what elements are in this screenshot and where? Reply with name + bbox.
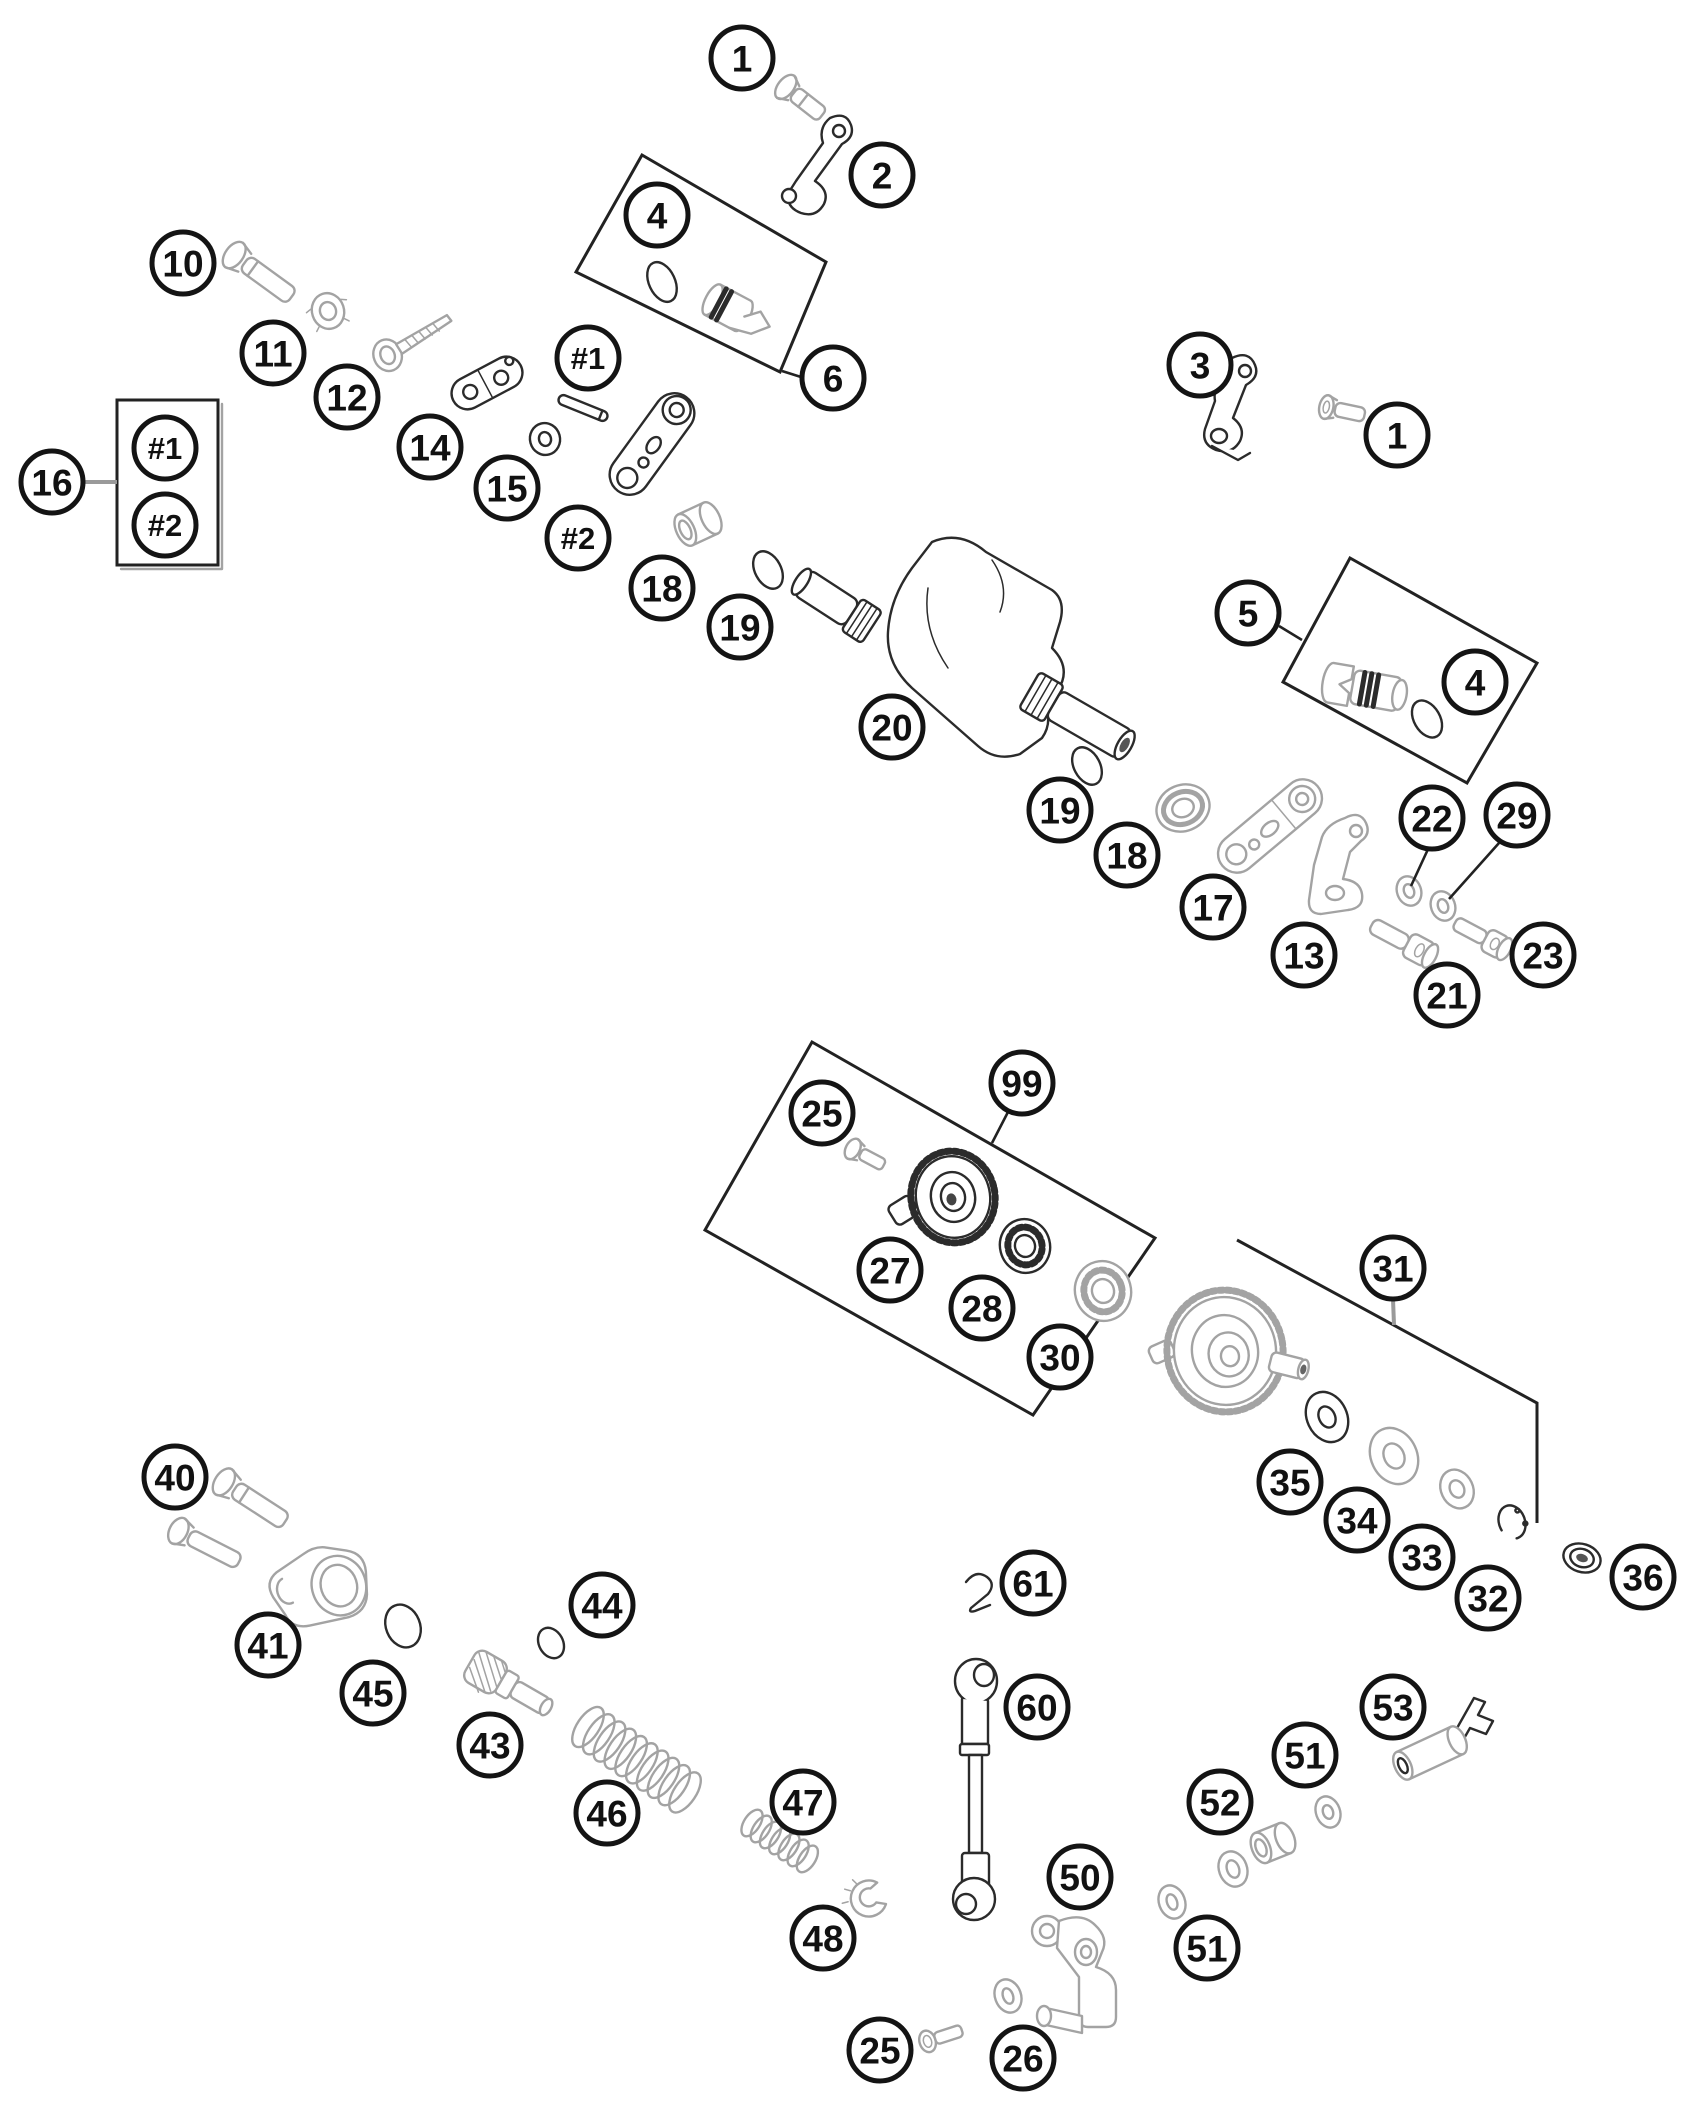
callout-28: 28 xyxy=(951,1277,1013,1339)
leader-22 xyxy=(1411,847,1429,886)
callout-61: 61 xyxy=(1002,1552,1064,1614)
callout-48: 48 xyxy=(792,1907,854,1969)
callout-label: 47 xyxy=(782,1782,823,1823)
callout-label: 16 xyxy=(31,462,72,503)
callout-label: 45 xyxy=(352,1673,393,1714)
callout-label: 6 xyxy=(823,358,844,399)
callout-label: 10 xyxy=(162,243,203,284)
part-ring-33 xyxy=(1434,1464,1480,1514)
callout-27: 27 xyxy=(859,1239,921,1301)
part-washer-51-top xyxy=(1311,1793,1344,1831)
callout-5: 5 xyxy=(1217,582,1279,644)
part-bolt-21 xyxy=(1366,913,1442,970)
part-washer-22 xyxy=(1393,873,1426,909)
part-oring-44 xyxy=(533,1623,569,1663)
part-bolt-23 xyxy=(1449,912,1515,962)
part-gear-31 xyxy=(1139,1277,1316,1425)
callout-11: 11 xyxy=(242,322,304,384)
part-oring-19-left xyxy=(747,546,789,594)
callout-22: 22 xyxy=(1401,787,1463,849)
callout-label: 40 xyxy=(154,1457,195,1498)
part-lever-17 xyxy=(1210,772,1329,881)
leader-29 xyxy=(1449,843,1499,899)
callout-label: 41 xyxy=(247,1625,288,1666)
callout-19: 19 xyxy=(709,596,771,658)
part-bolt-10 xyxy=(218,238,300,309)
callout-34: 34 xyxy=(1326,1489,1388,1551)
leader-6 xyxy=(782,371,801,377)
part-valve-body-20 xyxy=(786,538,1141,767)
part-bushing-18-left xyxy=(670,499,726,549)
part-spring-pin-12 xyxy=(369,313,461,375)
callout-hash1: #1 xyxy=(557,327,619,389)
callout-label: 25 xyxy=(859,2030,900,2071)
part-nut-36 xyxy=(1560,1539,1605,1577)
part-pushrod-60 xyxy=(953,1659,997,1920)
callout-label: 46 xyxy=(586,1793,627,1834)
callout-4: 4 xyxy=(626,184,688,246)
callout-label: 5 xyxy=(1238,593,1259,634)
part-screw-1-top xyxy=(771,71,831,126)
callout-label: 21 xyxy=(1426,975,1467,1016)
callout-53: 53 xyxy=(1362,1676,1424,1738)
callout-51: 51 xyxy=(1176,1917,1238,1979)
part-washer-34 xyxy=(1361,1420,1427,1492)
exploded-parts-diagram: 1246311011121415#1#216#1#218192019181713… xyxy=(0,0,1700,2110)
callout-label: 27 xyxy=(869,1250,910,1291)
callout-36: 36 xyxy=(1612,1546,1674,1608)
callout-40: 40 xyxy=(144,1446,206,1508)
callout-20: 20 xyxy=(861,696,923,758)
callout-label: 19 xyxy=(719,607,760,648)
callout-hash2: #2 xyxy=(547,507,609,569)
callout-label: 33 xyxy=(1401,1537,1442,1578)
callout-99: 99 xyxy=(991,1052,1053,1114)
callout-label: 35 xyxy=(1269,1462,1310,1503)
callout-10: 10 xyxy=(152,232,214,294)
callout-33: 33 xyxy=(1391,1526,1453,1588)
callout-26: 26 xyxy=(992,2027,1054,2089)
part-screw-1-right xyxy=(1317,394,1367,427)
parts-diagram-page: 1246311011121415#1#216#1#218192019181713… xyxy=(0,0,1700,2110)
callout-46: 46 xyxy=(576,1782,638,1844)
part-oring-45 xyxy=(379,1599,427,1653)
callout-label: 1 xyxy=(1387,415,1408,456)
callout-label: 48 xyxy=(802,1918,843,1959)
callout-label: 50 xyxy=(1059,1857,1100,1898)
callout-15: 15 xyxy=(476,457,538,519)
callout-17: 17 xyxy=(1182,876,1244,938)
callout-label: 3 xyxy=(1190,345,1211,386)
leader-lines-layer xyxy=(83,371,1499,1325)
callout-25: 25 xyxy=(791,1082,853,1144)
callout-19: 19 xyxy=(1029,779,1091,841)
callout-label: 53 xyxy=(1372,1687,1413,1728)
parts-layer xyxy=(164,71,1604,2054)
callout-label: 25 xyxy=(801,1093,842,1134)
callout-18: 18 xyxy=(1096,824,1158,886)
callout-1: 1 xyxy=(711,27,773,89)
part-ring-51-bottom xyxy=(1154,1882,1190,1923)
callout-label: 22 xyxy=(1411,798,1452,839)
callout-50: 50 xyxy=(1049,1846,1111,1908)
leader-5 xyxy=(1279,626,1302,640)
part-washer-26 xyxy=(990,1976,1026,2017)
callout-label: 14 xyxy=(409,427,451,468)
callout-12: 12 xyxy=(316,366,378,428)
callout-label: 13 xyxy=(1283,935,1324,976)
callout-label: 99 xyxy=(1001,1063,1042,1104)
part-pin-hash1 xyxy=(557,394,609,423)
callout-label: 4 xyxy=(1465,662,1486,703)
callout-35: 35 xyxy=(1259,1451,1321,1513)
part-washer-35 xyxy=(1298,1385,1356,1449)
callout-label: 32 xyxy=(1467,1578,1508,1619)
callout-18: 18 xyxy=(631,557,693,619)
callout-label: #2 xyxy=(148,508,182,543)
callout-label: 30 xyxy=(1039,1337,1080,1378)
callout-label: 36 xyxy=(1622,1557,1663,1598)
callout-label: 11 xyxy=(253,333,292,374)
part-oring-4-right xyxy=(1406,695,1449,743)
callout-label: 28 xyxy=(961,1288,1002,1329)
callout-4: 4 xyxy=(1444,651,1506,713)
part-washer-15 xyxy=(526,420,563,459)
callouts-layer: 1246311011121415#1#216#1#218192019181713… xyxy=(21,27,1674,2089)
callout-14: 14 xyxy=(399,416,461,478)
callout-16: 16 xyxy=(21,451,83,513)
callout-label: 61 xyxy=(1012,1563,1053,1604)
callout-label: 52 xyxy=(1199,1782,1240,1823)
callout-51: 51 xyxy=(1274,1724,1336,1786)
part-rocker-lever xyxy=(602,385,703,502)
part-piston-4-top xyxy=(698,281,776,344)
part-clip-61 xyxy=(966,1574,992,1612)
callout-label: 1 xyxy=(732,38,753,79)
callout-41: 41 xyxy=(237,1614,299,1676)
callout-label: 51 xyxy=(1284,1735,1325,1776)
leader-31 xyxy=(1393,1299,1394,1325)
callout-label: 12 xyxy=(326,377,367,418)
callout-30: 30 xyxy=(1029,1326,1091,1388)
callout-label: 29 xyxy=(1496,795,1537,836)
callout-hash2: #2 xyxy=(134,494,196,556)
part-circlip-32 xyxy=(1494,1501,1531,1542)
callout-60: 60 xyxy=(1006,1676,1068,1738)
callout-label: 60 xyxy=(1016,1687,1057,1728)
callout-label: 26 xyxy=(1002,2038,1043,2079)
part-piston-5 xyxy=(1319,662,1410,716)
callout-label: 20 xyxy=(871,707,912,748)
part-bolt-40b xyxy=(164,1514,245,1574)
callout-label: 15 xyxy=(486,468,527,509)
callout-label: 19 xyxy=(1039,790,1080,831)
part-oring-4-top xyxy=(641,257,682,306)
callout-hash1: #1 xyxy=(134,417,196,479)
part-screw-25-box xyxy=(841,1136,888,1175)
callout-label: 18 xyxy=(1106,835,1147,876)
callout-21: 21 xyxy=(1416,964,1478,1026)
callout-label: #1 xyxy=(571,341,605,376)
callout-label: 44 xyxy=(581,1585,623,1626)
callout-31: 31 xyxy=(1362,1237,1424,1299)
callout-29: 29 xyxy=(1486,784,1548,846)
callout-13: 13 xyxy=(1273,924,1335,986)
callout-label: 43 xyxy=(469,1725,510,1766)
part-link-14 xyxy=(446,351,528,415)
callout-label: #1 xyxy=(148,431,182,466)
callout-25: 25 xyxy=(849,2019,911,2081)
callout-label: 18 xyxy=(641,568,682,609)
callout-label: 2 xyxy=(872,155,893,196)
leader-99 xyxy=(992,1112,1008,1143)
callout-32: 32 xyxy=(1457,1567,1519,1629)
callout-45: 45 xyxy=(342,1662,404,1724)
callout-2: 2 xyxy=(851,144,913,206)
callout-6: 6 xyxy=(802,347,864,409)
part-bearing-18-right xyxy=(1149,777,1216,840)
part-bearing-30 xyxy=(1068,1255,1138,1327)
callout-47: 47 xyxy=(772,1771,834,1833)
callout-label: 23 xyxy=(1522,935,1563,976)
callout-52: 52 xyxy=(1189,1771,1251,1833)
part-bellcrank-50 xyxy=(1032,1916,1116,2033)
callout-44: 44 xyxy=(571,1574,633,1636)
callout-label: 4 xyxy=(647,195,668,236)
part-bearing-28 xyxy=(994,1213,1056,1278)
callout-label: 34 xyxy=(1336,1500,1378,1541)
callout-43: 43 xyxy=(459,1714,521,1776)
part-lever-2 xyxy=(782,116,852,215)
callout-label: #2 xyxy=(561,521,595,556)
callout-label: 31 xyxy=(1372,1248,1413,1289)
part-nut-11 xyxy=(302,287,353,334)
part-bushing-52 xyxy=(1247,1820,1300,1866)
part-lever-13 xyxy=(1309,815,1368,914)
part-bolt-40a xyxy=(208,1464,293,1534)
callout-label: 51 xyxy=(1186,1928,1227,1969)
callout-1: 1 xyxy=(1366,404,1428,466)
callout-23: 23 xyxy=(1512,924,1574,986)
callout-label: 17 xyxy=(1192,887,1233,928)
part-ring-52 xyxy=(1214,1847,1253,1890)
part-screw-25-bottom xyxy=(917,2020,966,2055)
callout-3: 3 xyxy=(1169,334,1231,396)
